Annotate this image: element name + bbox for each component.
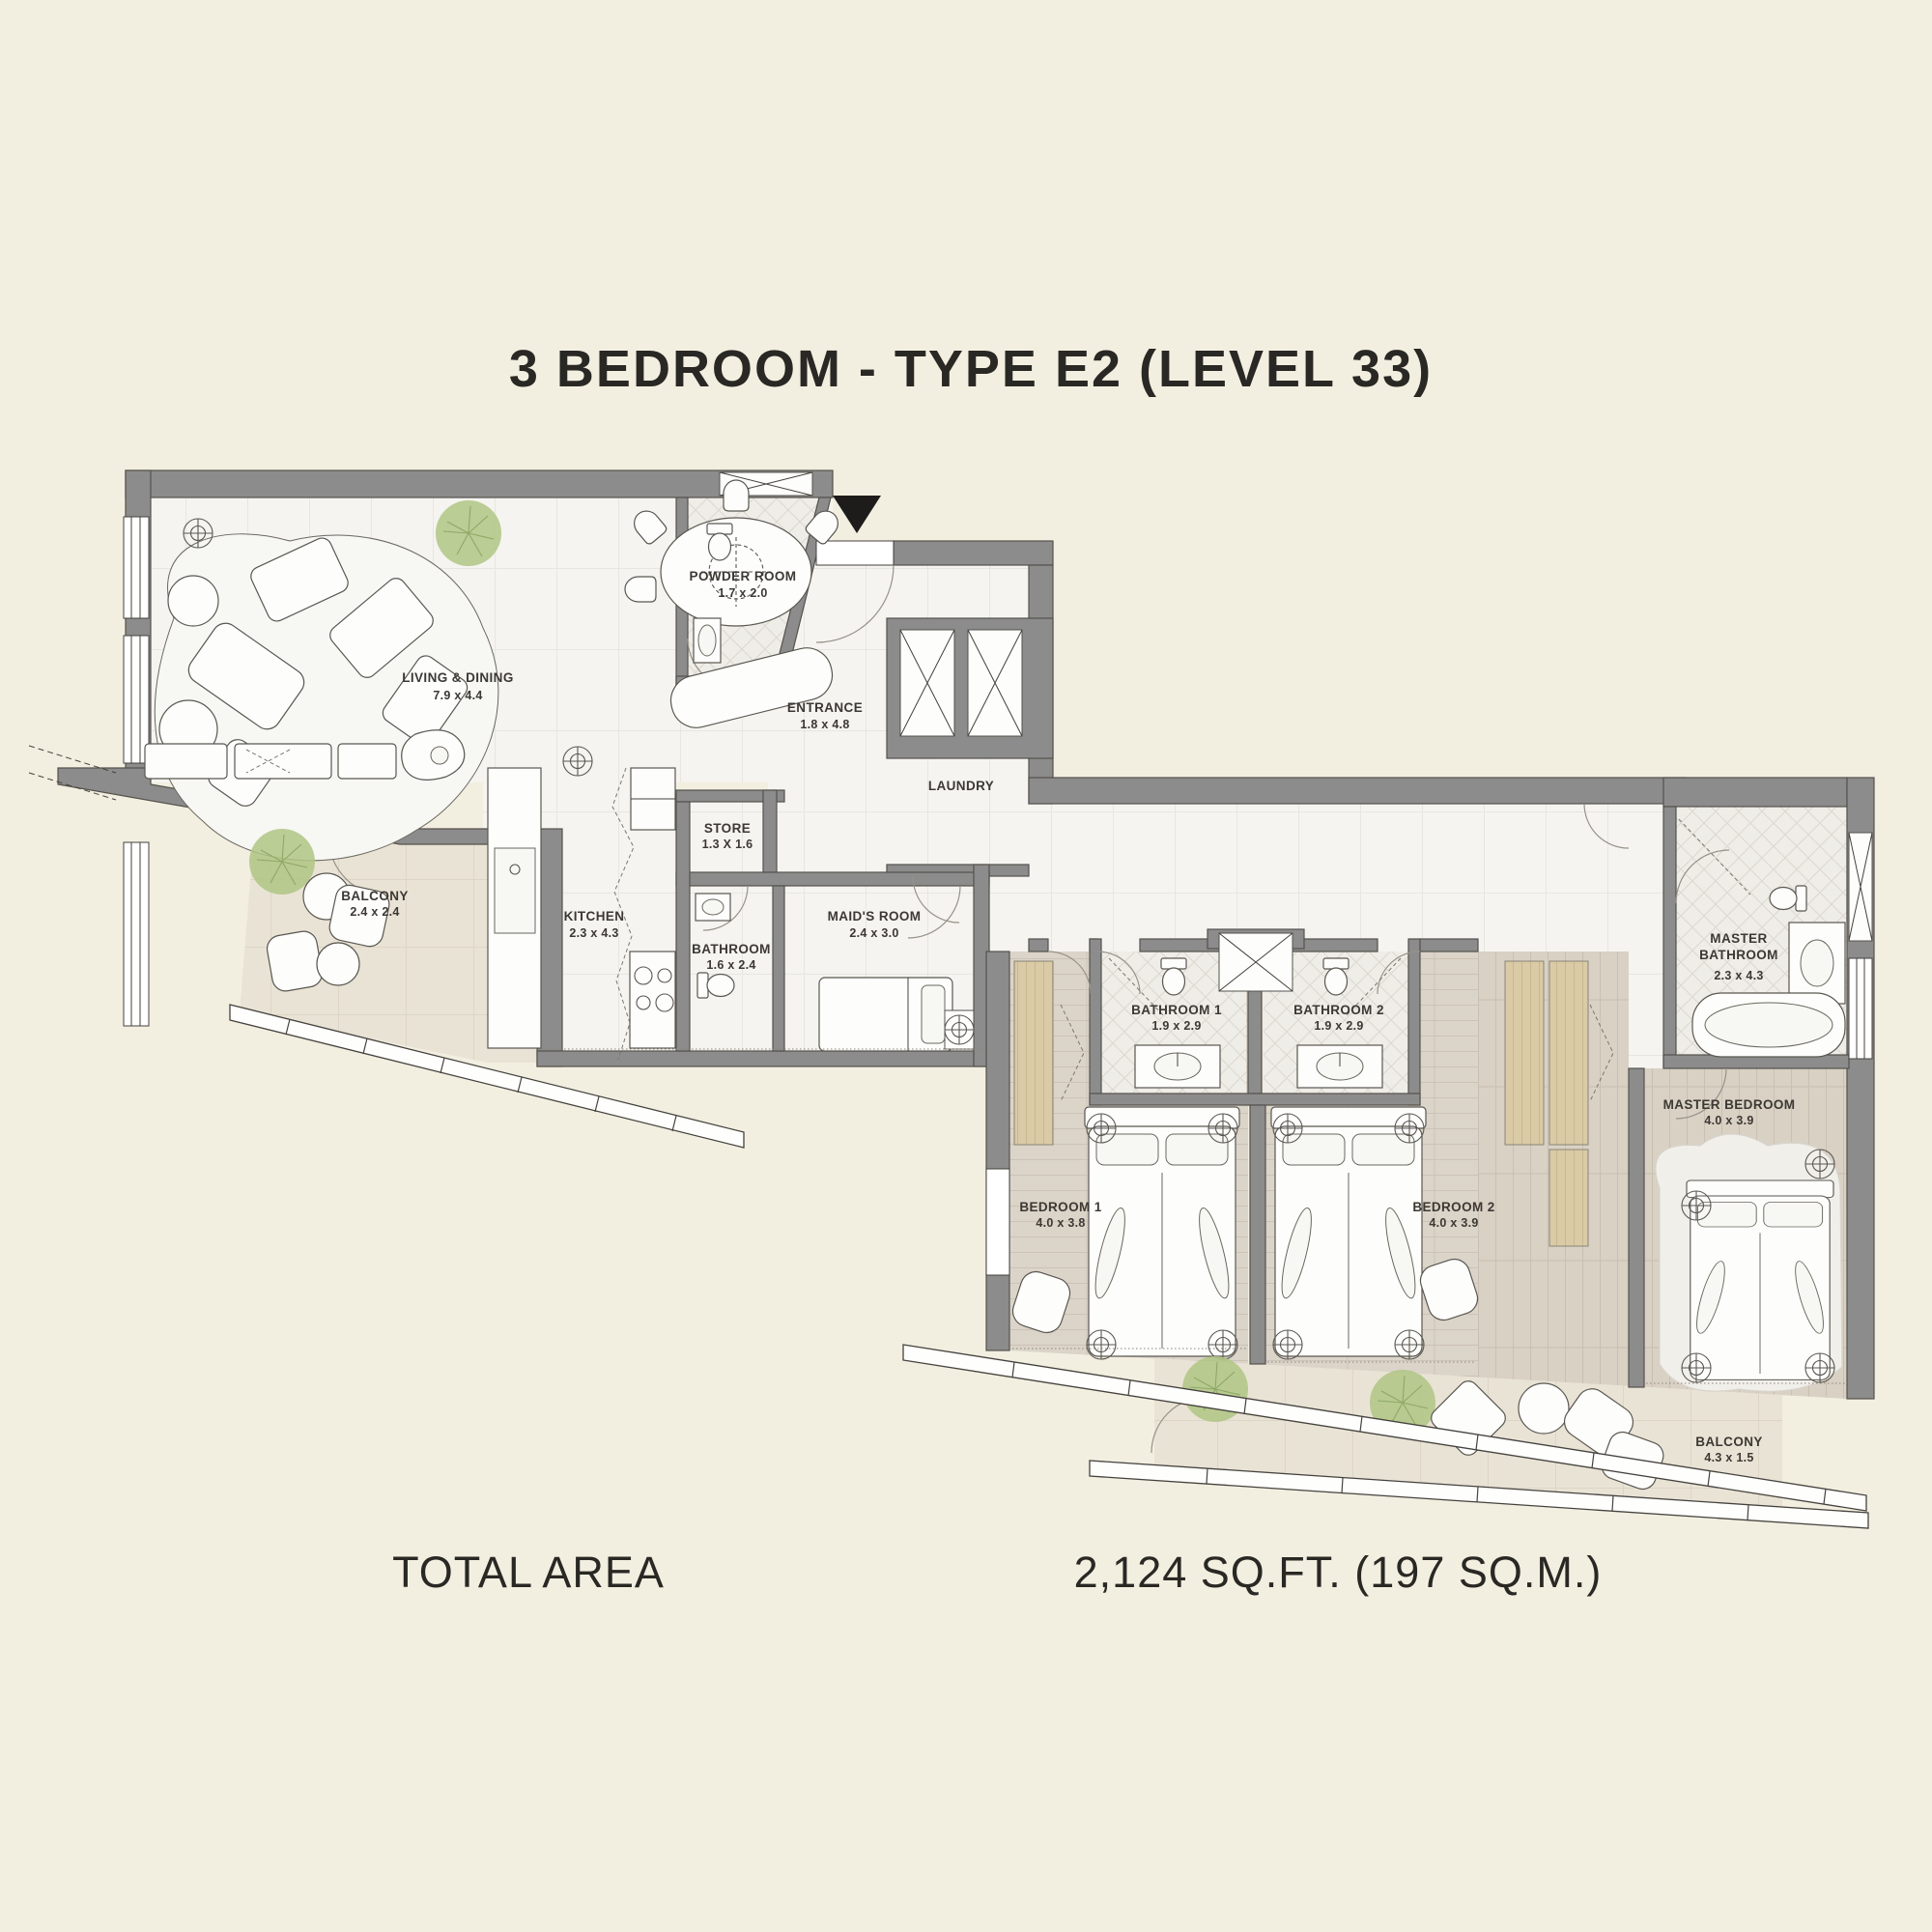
label-store: STORE <box>704 821 751 836</box>
wing-hall-floor <box>1029 804 1663 952</box>
master-entry-floor <box>1629 952 1663 1068</box>
dims-bedroom2: 4.0 x 3.9 <box>1429 1216 1478 1230</box>
plant-icon <box>436 500 501 566</box>
dims-maids-room: 2.4 x 3.0 <box>849 926 898 940</box>
dims-balcony-master: 4.3 x 1.5 <box>1704 1451 1753 1464</box>
floor-plan-canvas: LIVING & DINING 7.9 x 4.4 POWDER ROOM 1.… <box>0 0 1932 1932</box>
label-master-bathroom-line1: MASTER <box>1710 931 1767 946</box>
dims-bedroom1: 4.0 x 3.8 <box>1036 1216 1085 1230</box>
label-master-bedroom: MASTER BEDROOM <box>1663 1097 1796 1112</box>
total-area-label: TOTAL AREA <box>392 1548 665 1597</box>
label-living-dining: LIVING & DINING <box>402 670 514 685</box>
maids-room-furniture <box>819 978 974 1051</box>
label-bathroom1: BATHROOM 1 <box>1131 1003 1222 1017</box>
plant-icon <box>249 829 315 895</box>
dims-bathroom1: 1.9 x 2.9 <box>1151 1019 1201 1033</box>
label-kitchen: KITCHEN <box>564 909 625 923</box>
label-entrance: ENTRANCE <box>787 700 863 715</box>
floor-plan-page: LIVING & DINING 7.9 x 4.4 POWDER ROOM 1.… <box>0 0 1932 1932</box>
label-bathroom: BATHROOM <box>692 942 771 956</box>
master-bedroom-furniture <box>1656 1134 1842 1391</box>
entrance-door-leaf <box>816 541 894 565</box>
dims-entrance: 1.8 x 4.8 <box>800 718 849 731</box>
entrance-arrow-icon <box>833 496 881 533</box>
label-master-bathroom-line2: BATHROOM <box>1699 948 1778 962</box>
dims-kitchen: 2.3 x 4.3 <box>569 926 618 940</box>
bath-shaft <box>1219 933 1293 991</box>
label-balcony-master: BALCONY <box>1695 1435 1763 1449</box>
label-maids-room: MAID'S ROOM <box>828 909 922 923</box>
total-area-value: 2,124 SQ.FT. (197 SQ.M.) <box>1074 1548 1603 1597</box>
bedroom1-window <box>986 1169 1009 1275</box>
dims-balcony-living: 2.4 x 2.4 <box>350 905 399 919</box>
label-powder-room: POWDER ROOM <box>690 569 797 583</box>
dims-store: 1.3 X 1.6 <box>702 838 753 851</box>
dims-powder-room: 1.7 x 2.0 <box>718 586 767 600</box>
dims-master-bathroom: 2.3 x 4.3 <box>1714 969 1763 982</box>
label-laundry: LAUNDRY <box>928 779 994 793</box>
dims-bathroom2: 1.9 x 2.9 <box>1314 1019 1363 1033</box>
dims-living-dining: 7.9 x 4.4 <box>433 689 482 702</box>
label-bedroom1: BEDROOM 1 <box>1019 1200 1101 1214</box>
label-bathroom2: BATHROOM 2 <box>1293 1003 1384 1017</box>
label-bedroom2: BEDROOM 2 <box>1412 1200 1494 1214</box>
label-balcony-living: BALCONY <box>341 889 409 903</box>
page-title: 3 BEDROOM - TYPE E2 (LEVEL 33) <box>509 340 1433 398</box>
dims-master-bedroom: 4.0 x 3.9 <box>1704 1114 1753 1127</box>
dims-bathroom: 1.6 x 2.4 <box>706 958 755 972</box>
